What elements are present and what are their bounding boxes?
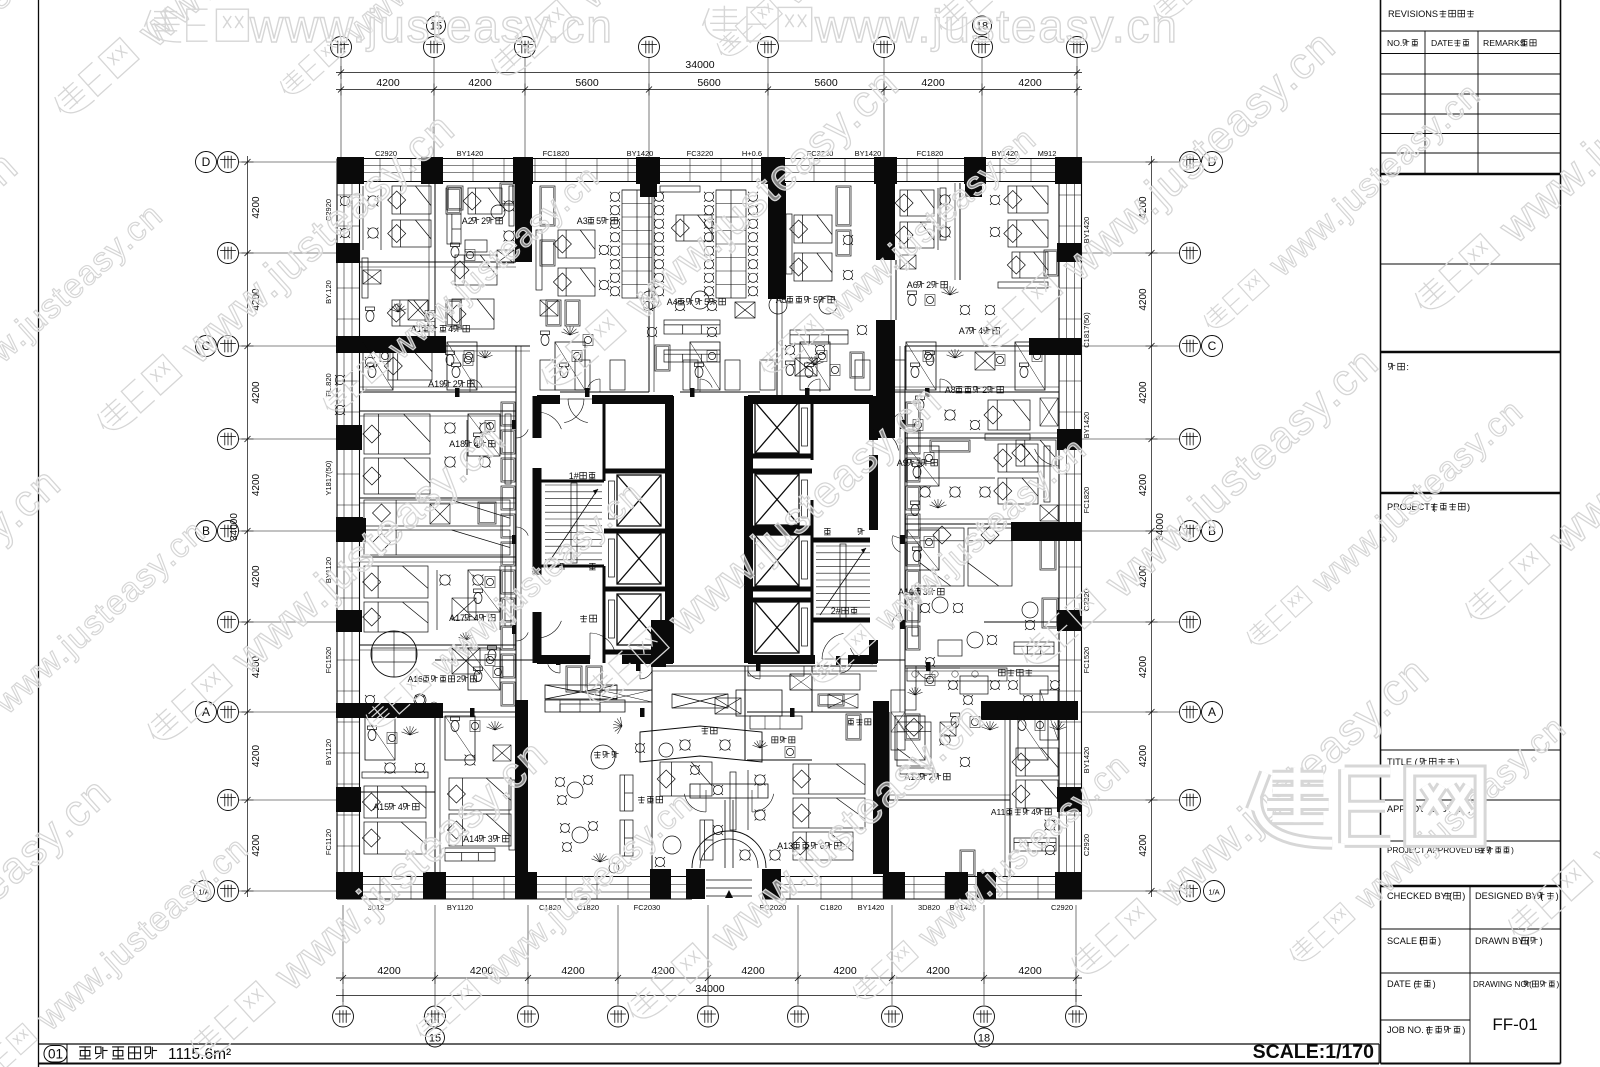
svg-text:NO.: NO. <box>1387 38 1402 48</box>
svg-text:4200: 4200 <box>1018 965 1042 977</box>
svg-text:SCALE (: SCALE ( <box>1387 936 1423 946</box>
svg-text:4200: 4200 <box>1138 381 1149 404</box>
svg-text:A8: A8 <box>945 385 956 395</box>
svg-text:D: D <box>202 155 211 169</box>
svg-text:A7: A7 <box>959 326 970 336</box>
svg-text:C1820: C1820 <box>820 903 842 912</box>
svg-text:): ) <box>1511 846 1514 855</box>
svg-text:4200: 4200 <box>468 77 492 89</box>
svg-text:REVISIONS: REVISIONS <box>1388 9 1438 19</box>
svg-text:4200: 4200 <box>251 834 262 857</box>
svg-text:): ) <box>1540 936 1543 946</box>
svg-text:): ) <box>1462 1025 1465 1035</box>
svg-text:A2: A2 <box>462 216 473 226</box>
svg-text:SCALE:1/170: SCALE:1/170 <box>1253 1041 1375 1063</box>
svg-text:BY1420: BY1420 <box>457 149 484 158</box>
svg-text:15: 15 <box>429 1033 441 1045</box>
svg-text:BY1120: BY1120 <box>447 903 473 912</box>
svg-text:C: C <box>1208 339 1217 353</box>
svg-text:5: 5 <box>596 216 601 226</box>
svg-text:4200: 4200 <box>1138 473 1149 496</box>
svg-text:4200: 4200 <box>921 77 945 89</box>
svg-text:01: 01 <box>48 1047 63 1062</box>
svg-text:BY1420: BY1420 <box>855 149 882 158</box>
svg-text:4200: 4200 <box>251 473 262 496</box>
svg-text:C2920: C2920 <box>1082 834 1091 856</box>
svg-text:34000: 34000 <box>685 59 714 71</box>
svg-text:5600: 5600 <box>575 77 599 89</box>
svg-text:4200: 4200 <box>1018 77 1042 89</box>
svg-text:4200: 4200 <box>251 565 262 588</box>
svg-text:www.justeasy.cn: www.justeasy.cn <box>814 0 1179 52</box>
svg-text:18: 18 <box>978 1033 990 1045</box>
svg-text:): ) <box>1557 980 1560 989</box>
svg-text:DATE: DATE <box>1431 38 1454 48</box>
svg-text:4200: 4200 <box>926 965 950 977</box>
svg-text:FC1820: FC1820 <box>1082 487 1091 514</box>
svg-text:DRAWING NO.(: DRAWING NO.( <box>1473 980 1532 989</box>
svg-text:3: 3 <box>488 834 493 844</box>
svg-text:DATE (: DATE ( <box>1387 979 1416 989</box>
svg-text:4200: 4200 <box>1138 288 1149 311</box>
svg-text:C1817(50): C1817(50) <box>1082 312 1091 348</box>
svg-text:2#: 2# <box>831 606 841 616</box>
svg-text:): ) <box>1462 891 1465 901</box>
svg-text:4200: 4200 <box>251 744 262 767</box>
svg-text:FC1820: FC1820 <box>543 149 570 158</box>
svg-text:BY1420: BY1420 <box>1082 412 1091 439</box>
svg-text:): ) <box>1433 979 1436 989</box>
svg-text:): ) <box>1467 502 1470 512</box>
svg-text:BY.120: BY.120 <box>324 280 333 304</box>
svg-text:www.justeasy.cn: www.justeasy.cn <box>249 0 614 52</box>
svg-text:DRAWN BY (: DRAWN BY ( <box>1475 936 1530 946</box>
svg-text:4200: 4200 <box>651 965 675 977</box>
svg-text:FC1820: FC1820 <box>917 149 944 158</box>
svg-text:2: 2 <box>453 379 458 389</box>
svg-text:FC1120: FC1120 <box>324 829 333 855</box>
svg-text:4200: 4200 <box>833 965 857 977</box>
svg-text:C2920: C2920 <box>1051 903 1073 912</box>
svg-text:BY1120: BY1120 <box>324 739 333 765</box>
svg-text:4: 4 <box>398 802 403 812</box>
svg-text:4200: 4200 <box>1138 834 1149 857</box>
svg-text:5600: 5600 <box>697 77 721 89</box>
svg-text:4200: 4200 <box>251 196 262 219</box>
svg-text:2: 2 <box>926 280 931 290</box>
svg-text:1#: 1# <box>569 471 579 481</box>
svg-text:): ) <box>1438 936 1441 946</box>
svg-text:4200: 4200 <box>741 965 765 977</box>
svg-text:REMARKS: REMARKS <box>1483 38 1526 48</box>
svg-text:FC3220: FC3220 <box>687 149 714 158</box>
svg-text:FC1520: FC1520 <box>324 647 333 674</box>
svg-text:4200: 4200 <box>377 965 401 977</box>
svg-text:Y1817(50): Y1817(50) <box>324 460 333 496</box>
svg-text:BY1420: BY1420 <box>858 903 885 912</box>
svg-text:A6: A6 <box>907 280 918 290</box>
svg-text::: : <box>1406 362 1409 372</box>
svg-text:FF-01: FF-01 <box>1492 1015 1537 1034</box>
svg-text:JOB NO. (: JOB NO. ( <box>1387 1025 1429 1035</box>
svg-text:H+0.6: H+0.6 <box>742 149 762 158</box>
svg-text:FC1520: FC1520 <box>1082 647 1091 674</box>
svg-text:): ) <box>1556 891 1559 901</box>
svg-text:34000: 34000 <box>695 983 724 995</box>
svg-text:A19: A19 <box>428 379 444 389</box>
svg-text:34000: 34000 <box>229 513 240 541</box>
svg-text:A11: A11 <box>991 807 1006 817</box>
svg-text:4200: 4200 <box>561 965 585 977</box>
svg-text:5600: 5600 <box>814 77 838 89</box>
svg-text:4200: 4200 <box>1138 744 1149 767</box>
svg-text:4200: 4200 <box>376 77 400 89</box>
svg-text:A3: A3 <box>577 216 588 226</box>
svg-text:FL.820: FL.820 <box>324 373 333 396</box>
svg-text:A: A <box>1208 705 1216 719</box>
svg-text:2: 2 <box>982 385 987 395</box>
svg-text:BY1420: BY1420 <box>627 149 654 158</box>
svg-text:2: 2 <box>481 216 486 226</box>
svg-text:4200: 4200 <box>1138 655 1149 678</box>
svg-text:4200: 4200 <box>251 381 262 404</box>
svg-text:FC2030: FC2030 <box>634 903 661 912</box>
